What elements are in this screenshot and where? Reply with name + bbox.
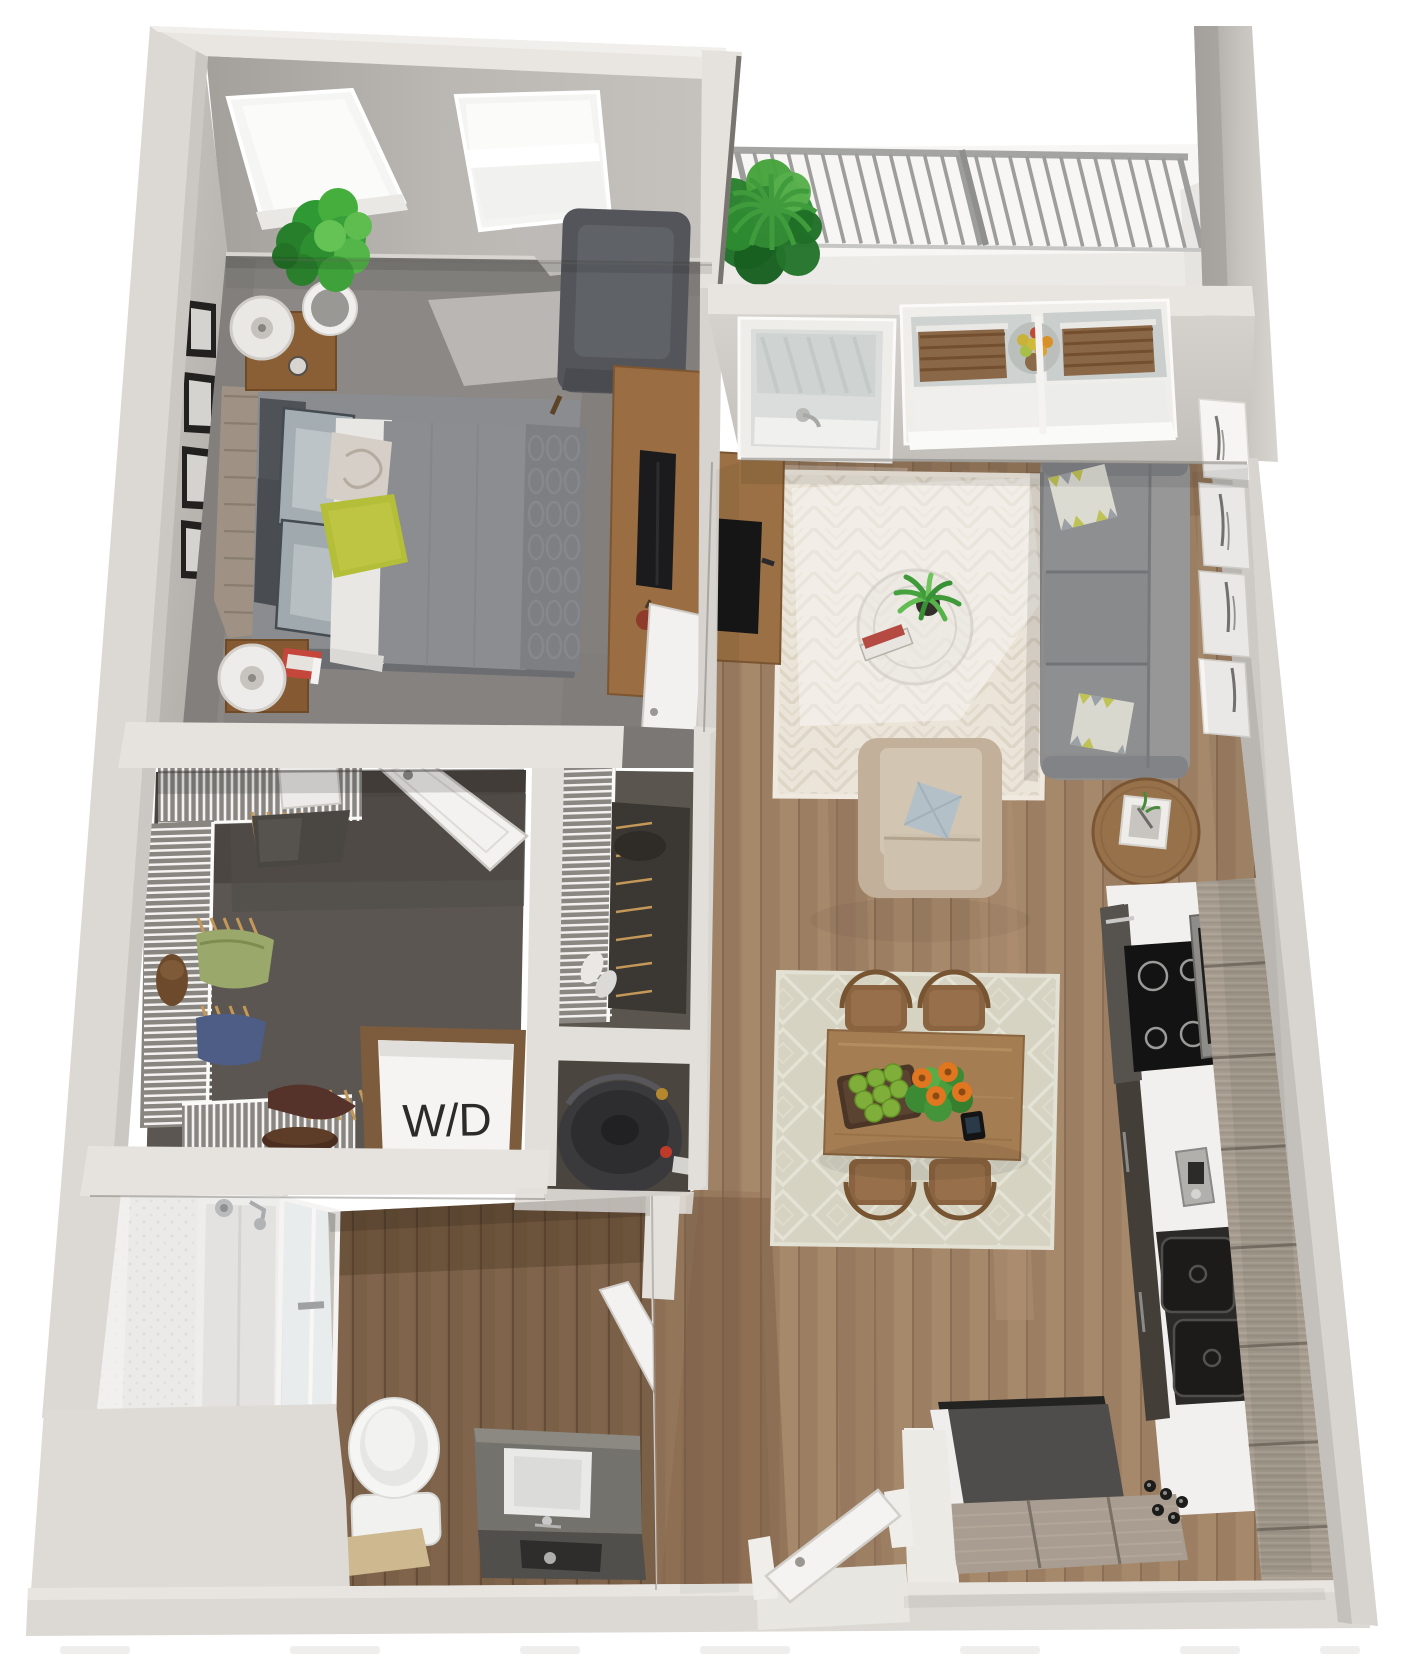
svg-text:W/D: W/D: [402, 1093, 492, 1147]
